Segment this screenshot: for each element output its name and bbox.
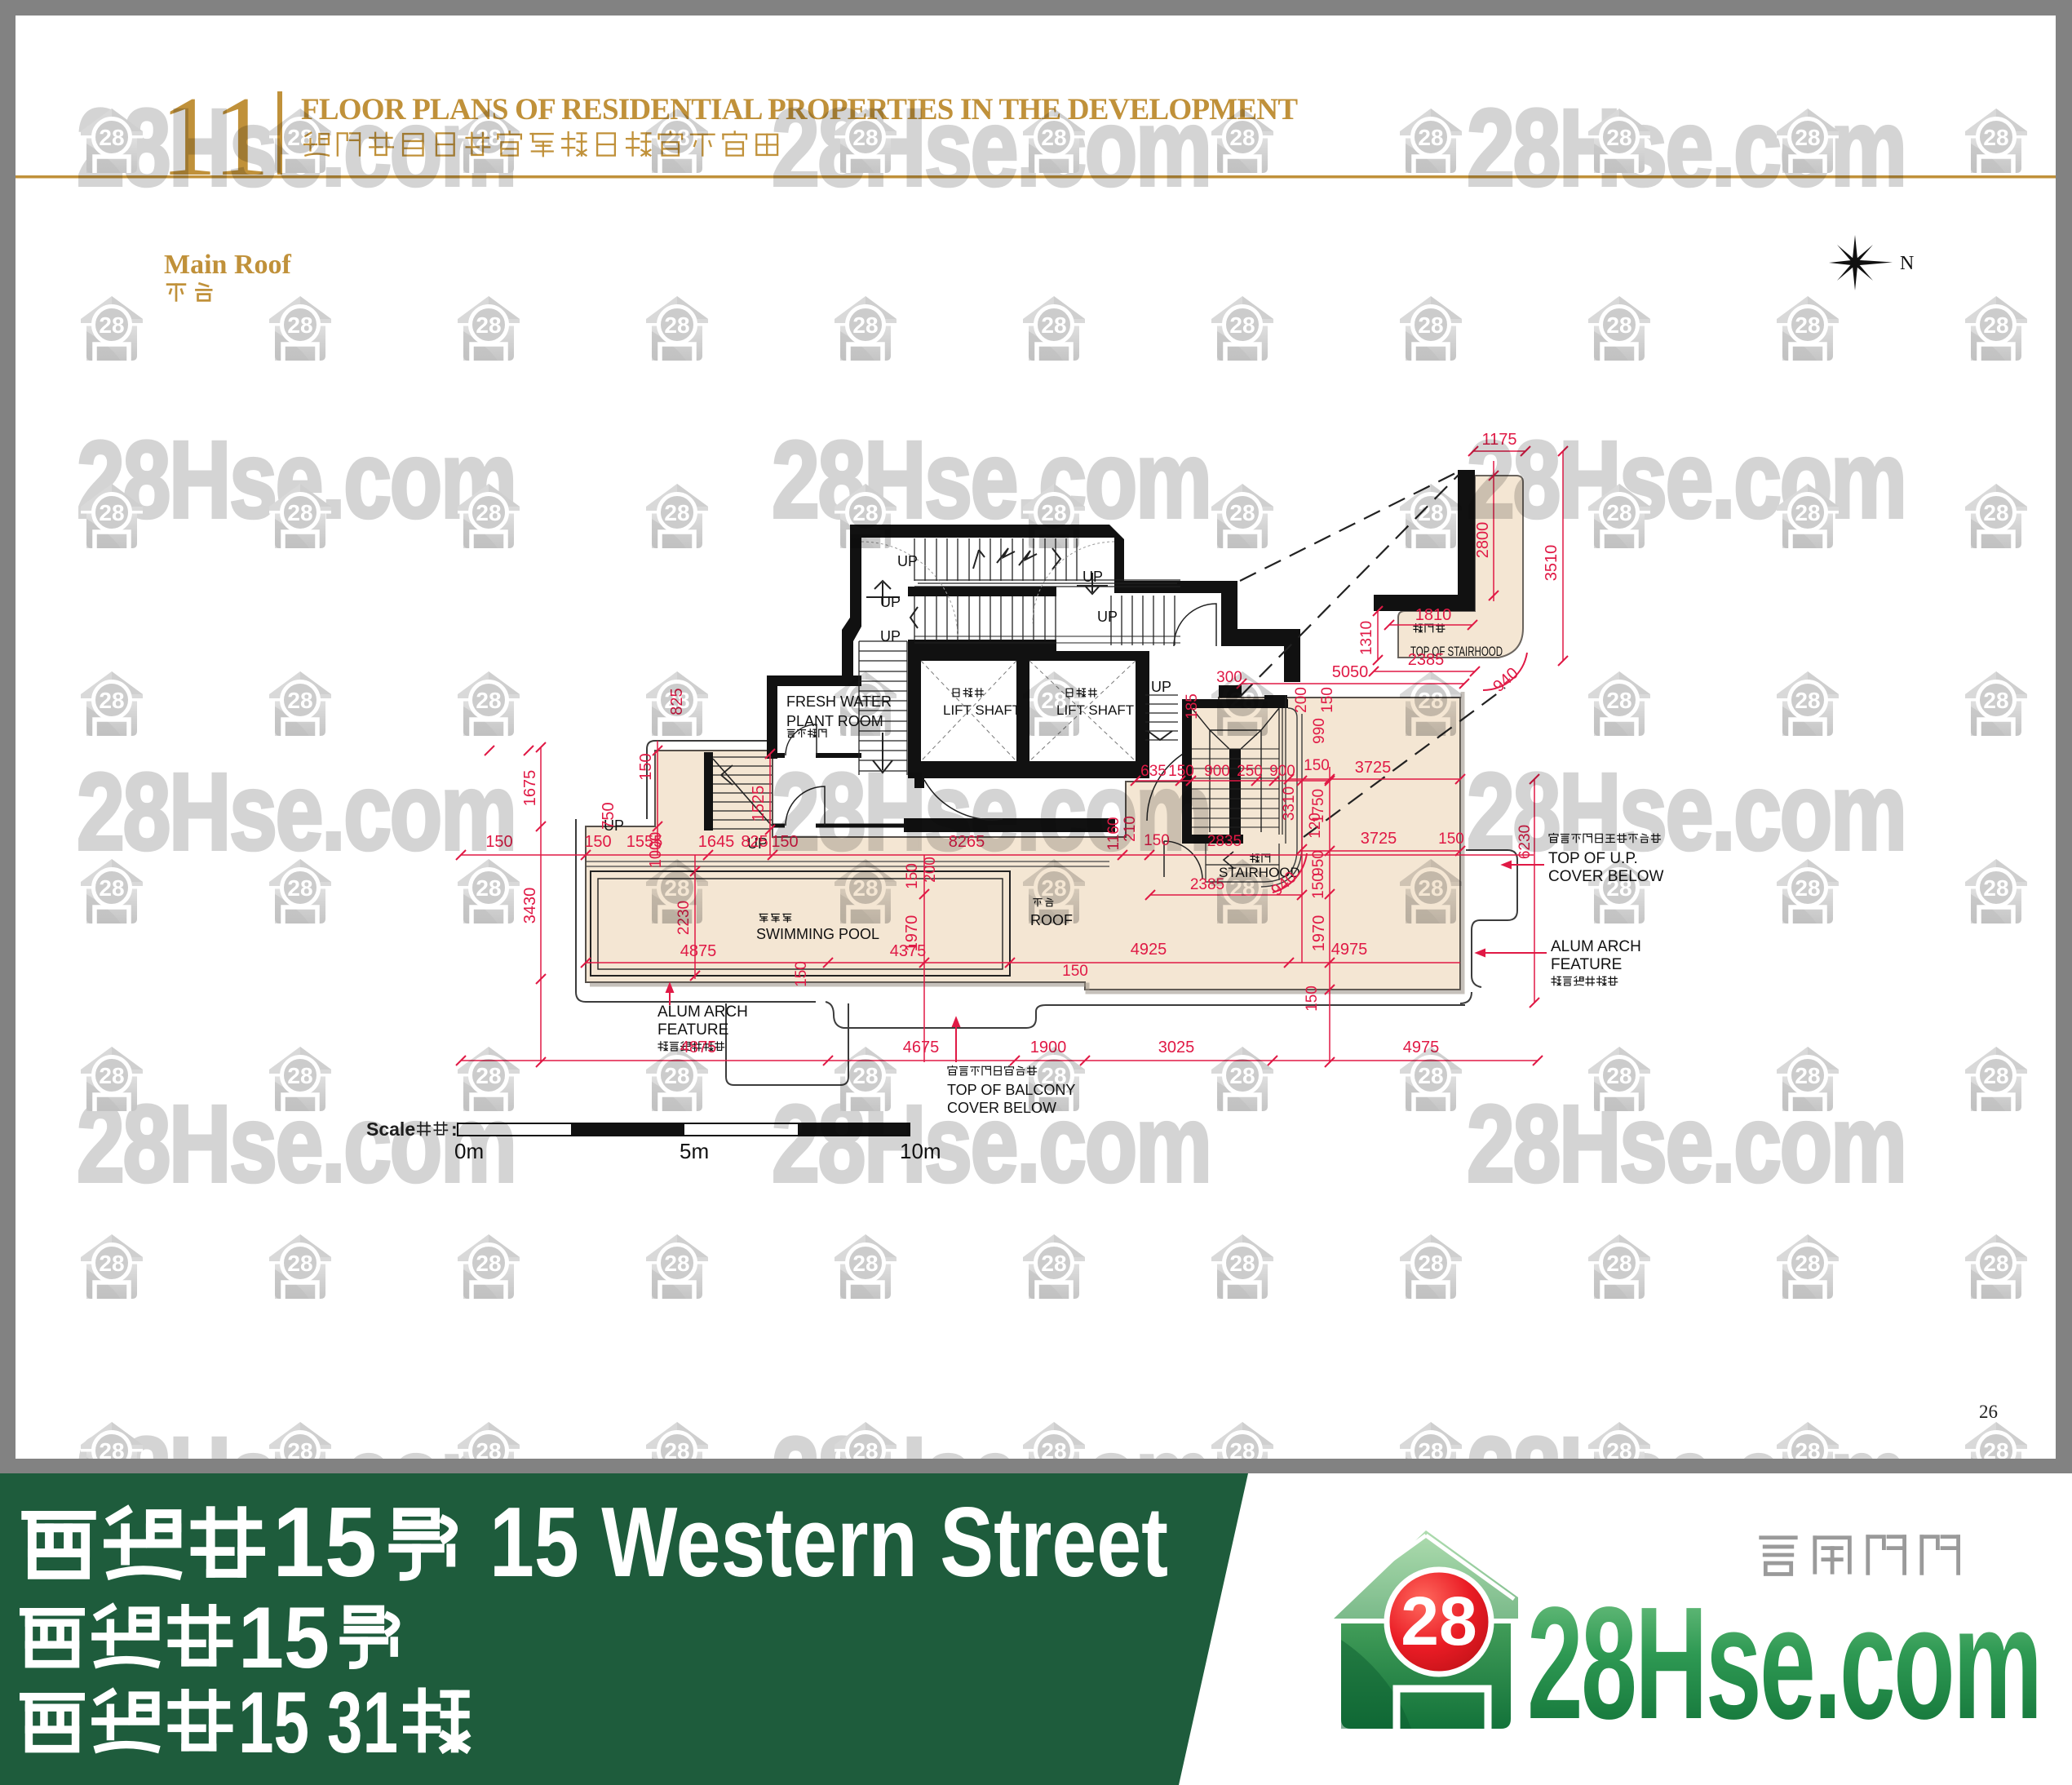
svg-text:15 31: 15 31 [238, 1673, 398, 1771]
svg-text:15 Western Street: 15 Western Street [489, 1486, 1168, 1597]
svg-text:28: 28 [1401, 1583, 1477, 1659]
svg-text:15: 15 [272, 1486, 377, 1597]
svg-text:28Hse.com: 28Hse.com [1527, 1574, 2040, 1752]
svg-text:15: 15 [238, 1588, 330, 1686]
